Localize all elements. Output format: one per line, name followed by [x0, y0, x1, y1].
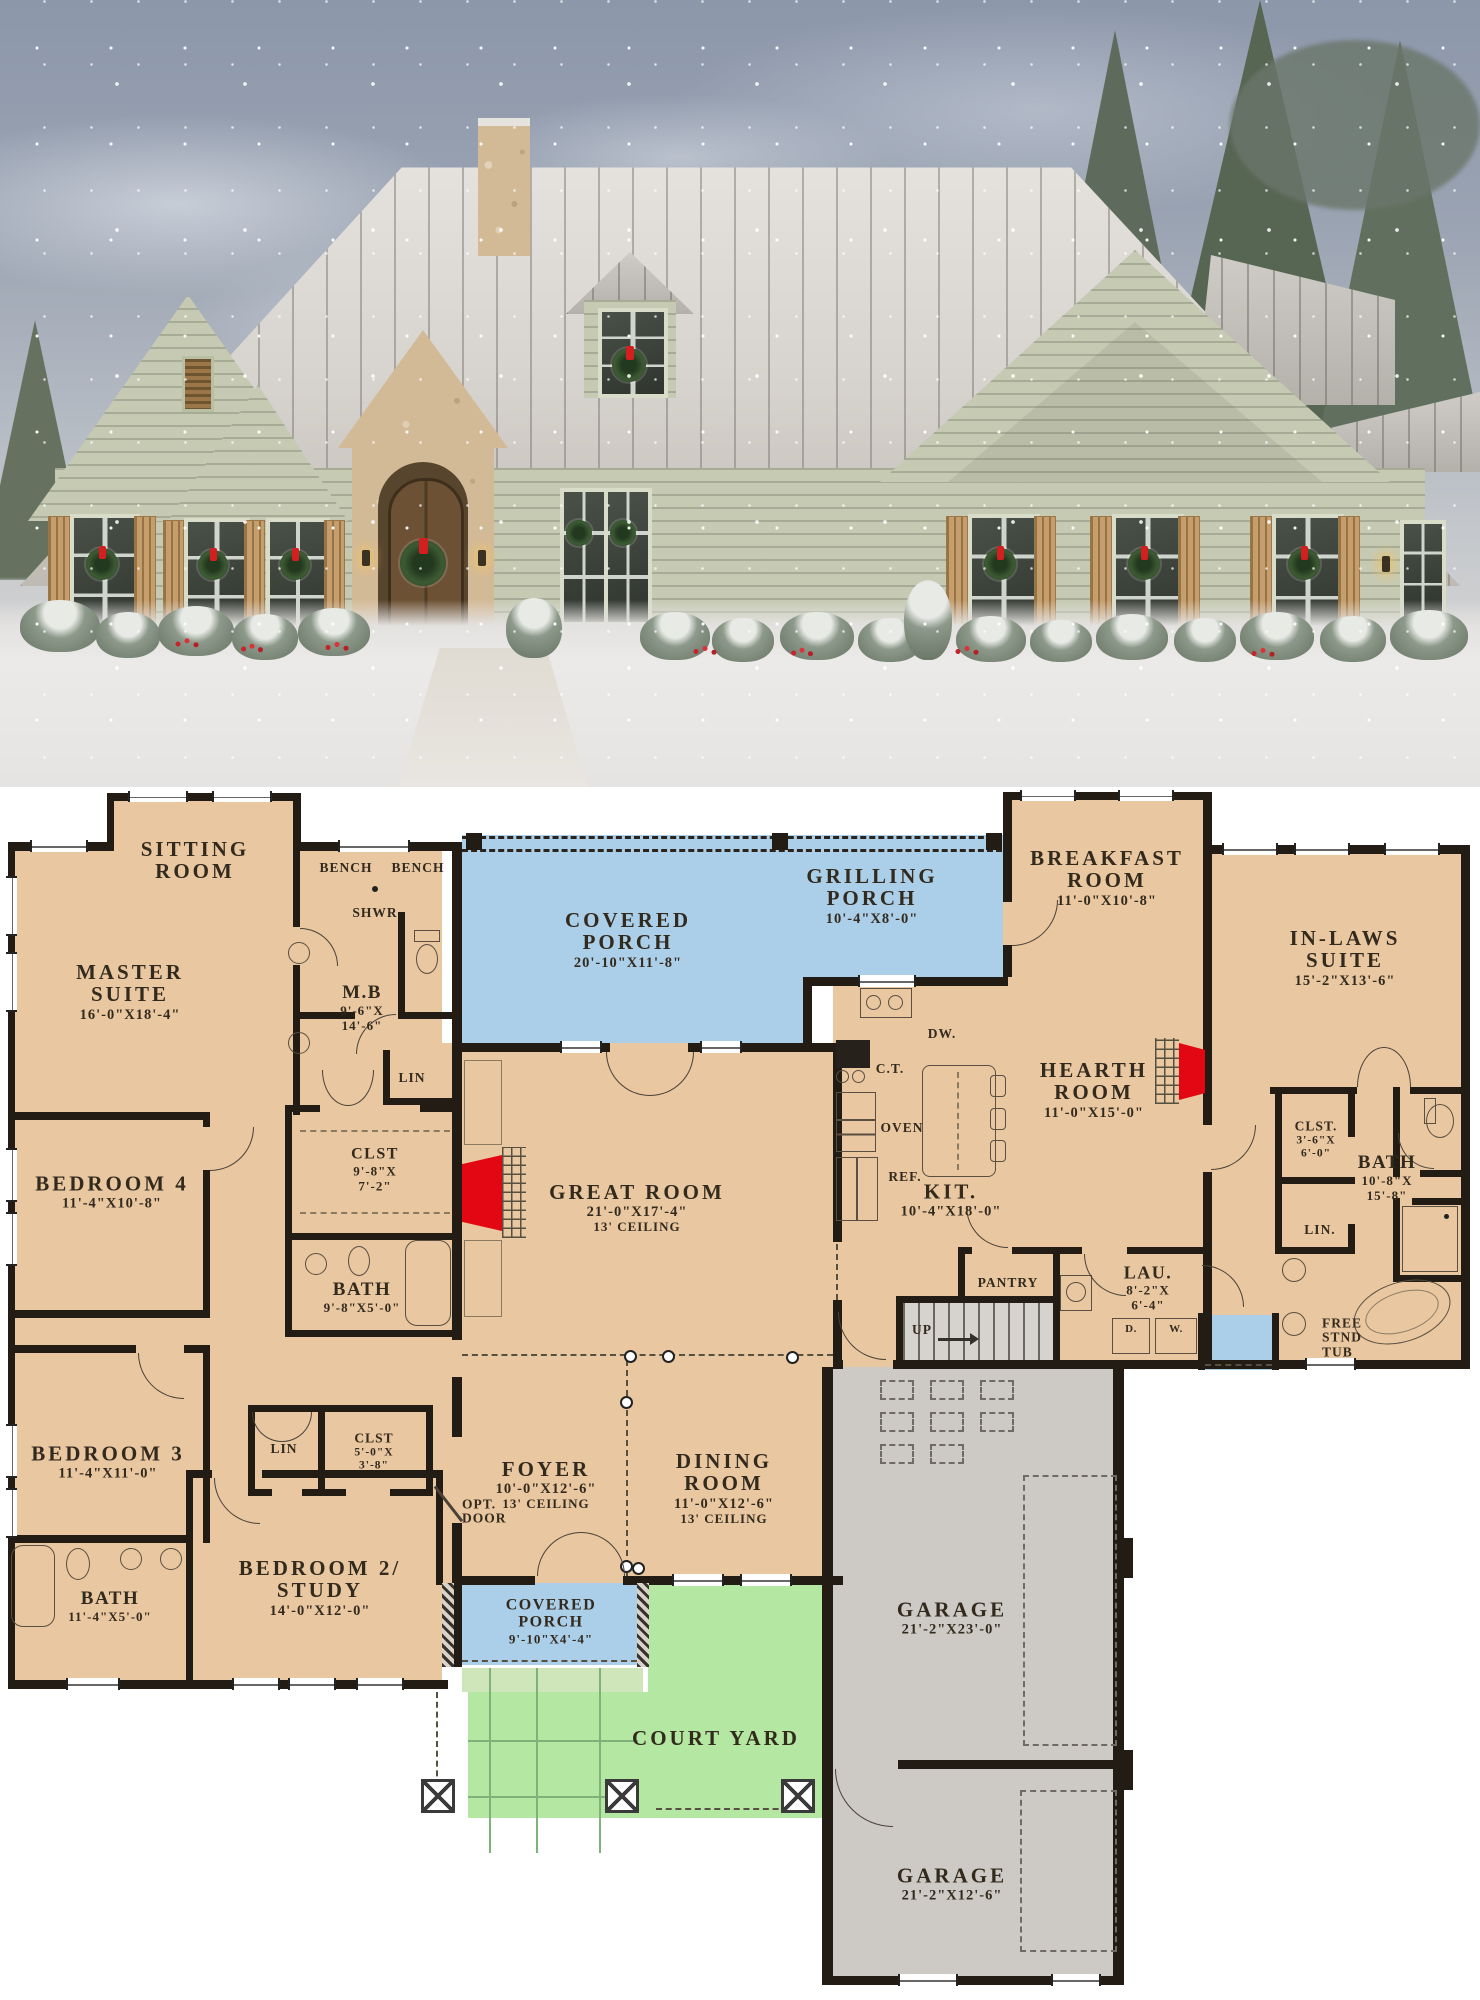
house-exterior-photo — [0, 0, 1480, 787]
porch-edge — [462, 849, 1002, 852]
porch-edge — [1205, 1364, 1272, 1366]
label: REF. — [888, 1170, 921, 1184]
room-name: LIN. — [1304, 1223, 1335, 1237]
wall — [426, 1405, 433, 1496]
wall — [318, 1405, 325, 1496]
room-dims: 21'-2"X12'-6" — [897, 1888, 1007, 1904]
toilet-tank-symbol — [414, 930, 440, 942]
wall — [1410, 1087, 1461, 1094]
storage-dash — [980, 1412, 1014, 1432]
wall — [452, 1377, 462, 1437]
room-label-great: GREAT ROOM21'-0"X17'-4"13' CEILING — [549, 1181, 725, 1235]
wall — [420, 1105, 462, 1112]
room-name: IN-LAWS SUITE — [1278, 927, 1413, 972]
room-label-dining: DINING ROOM11'-0"X12'-6"13' CEILING — [674, 1450, 774, 1526]
wall — [285, 1105, 292, 1240]
label-lin: LIN. — [1304, 1223, 1335, 1237]
porch-edge — [462, 1660, 637, 1662]
wall — [1203, 845, 1212, 1035]
sink-basin — [1066, 1282, 1086, 1302]
wall — [1275, 1177, 1355, 1184]
column-icon — [624, 1350, 637, 1363]
room-dims: 16'-0"X18'-4" — [76, 1007, 184, 1023]
room-dims: 21'-2"X23'-0" — [897, 1622, 1007, 1638]
wall — [285, 1233, 462, 1240]
room-dims: 11'-0"X12'-6" — [674, 1495, 774, 1511]
refrigerator-symbol — [836, 1157, 878, 1221]
wall — [1275, 1247, 1355, 1254]
room-name: BATH — [1358, 1153, 1416, 1173]
wall — [203, 1112, 210, 1127]
closet-rod — [300, 1212, 450, 1214]
room-name: CLST — [354, 1431, 393, 1445]
walk-line — [489, 1668, 491, 1853]
wall — [688, 1043, 700, 1052]
label-dryer: D. — [1125, 1324, 1137, 1336]
room-dims: 5'-0"X 3'-8" — [354, 1447, 393, 1473]
up-arrow — [938, 1338, 972, 1341]
shrub — [712, 618, 774, 662]
shrub — [1030, 620, 1092, 662]
wall — [1003, 945, 1012, 977]
hatched-wall — [637, 1583, 649, 1667]
wall — [285, 1330, 462, 1337]
room-label-clst-inlaws: CLST.3'-6"X 6'-0" — [1295, 1119, 1338, 1160]
wall — [1060, 1247, 1082, 1254]
wall — [1003, 792, 1012, 902]
window-marker — [1305, 1358, 1356, 1370]
column-icon — [786, 1351, 799, 1364]
room-label-bedroom4: BEDROOM 411'-4"X10'-8" — [35, 1172, 189, 1211]
walk-line — [468, 1740, 638, 1742]
wall — [1270, 1087, 1357, 1094]
label-washer: W. — [1169, 1324, 1183, 1336]
room-name: GARAGE — [897, 1864, 1007, 1886]
wall — [803, 977, 812, 1052]
porch-post — [466, 833, 482, 850]
room-name: COVERED PORCH — [565, 909, 691, 954]
room-label-clst-b3: CLST5'-0"X 3'-8" — [354, 1431, 393, 1472]
room-name: CLST — [351, 1146, 399, 1163]
wall — [738, 1043, 840, 1052]
room-dims: 10'-4"X18'-0" — [901, 1204, 1002, 1220]
shower-symbol — [1402, 1206, 1458, 1272]
wall — [1275, 1087, 1282, 1254]
room-name: HEARTH ROOM — [1040, 1059, 1148, 1104]
room-name: DINING ROOM — [674, 1450, 774, 1495]
wall — [833, 1360, 843, 1369]
wall — [8, 1535, 193, 1543]
room-label-master: MASTER SUITE16'-0"X18'-4" — [76, 961, 184, 1023]
wall — [1272, 1313, 1279, 1370]
shrub — [1320, 616, 1386, 662]
storage-dash — [930, 1380, 964, 1400]
shrub — [506, 598, 562, 658]
courtyard-post — [781, 1779, 815, 1813]
porch-edge — [462, 836, 1002, 839]
wall — [248, 1405, 433, 1412]
wall — [452, 1147, 462, 1237]
room-name: GRILLING PORCH — [806, 865, 937, 910]
wall — [452, 1043, 462, 1147]
shrub — [1174, 618, 1236, 662]
room-name: SITTING ROOM — [141, 838, 250, 883]
window-marker — [1020, 790, 1076, 801]
room-dims: 10'-4"X8'-0" — [806, 911, 937, 927]
window-marker — [560, 1041, 602, 1053]
sink-symbol — [1282, 1312, 1306, 1336]
wall — [107, 793, 114, 850]
bathtub-symbol — [11, 1545, 55, 1627]
chimney — [478, 118, 530, 256]
sink-symbol — [305, 1253, 327, 1275]
room-dims: 9'-6"X 14'-6" — [340, 1004, 384, 1033]
oven-symbol — [836, 1092, 876, 1152]
wall — [203, 1170, 210, 1318]
wall — [203, 1345, 210, 1543]
window-marker — [740, 1574, 792, 1586]
room-label-bedroom2: BEDROOM 2/ STUDY14'-0"X12'-0" — [239, 1557, 401, 1619]
window-marker — [6, 1148, 17, 1202]
wall — [390, 1489, 433, 1496]
toilet-symbol — [416, 944, 438, 974]
room-label-clst-master: CLST9'-8"X 7'-2" — [351, 1146, 399, 1193]
room-label-breakfast: BREAKFAST ROOM11'-0"X10'-8" — [1030, 847, 1184, 909]
room-dims: 11'-4"X11'-0" — [31, 1466, 185, 1482]
column-icon — [632, 1562, 645, 1575]
room-name: CLST. — [1295, 1119, 1338, 1133]
window-marker — [338, 840, 410, 852]
label-bench: BENCH — [391, 861, 444, 875]
kitchen-island — [922, 1065, 996, 1177]
room-name: COVERED PORCH — [506, 1597, 597, 1631]
shrub — [20, 600, 100, 652]
wall — [912, 977, 1008, 986]
cooktop-symbol — [836, 1040, 870, 1068]
room-name: BENCH — [319, 861, 372, 875]
column-icon — [620, 1396, 633, 1409]
room-dims: 15'-2"X13'-6" — [1278, 973, 1413, 989]
wall — [1127, 1247, 1208, 1254]
window-marker — [232, 1678, 280, 1690]
room-label-hearth: HEARTH ROOM11'-0"X15'-0" — [1040, 1059, 1148, 1121]
label: D. — [1125, 1324, 1137, 1336]
wall — [1203, 1110, 1212, 1125]
fireplace-icon — [462, 1155, 502, 1231]
label-oven: OVEN — [880, 1121, 923, 1135]
wall — [8, 1345, 136, 1353]
room-name: GARAGE — [897, 1598, 1007, 1620]
window-marker — [128, 791, 188, 802]
label: W. — [1169, 1324, 1183, 1336]
room-name: BEDROOM 2/ STUDY — [239, 1557, 401, 1602]
room-label-sitting: SITTING ROOM — [141, 838, 250, 883]
beam-dashed — [626, 1360, 628, 1576]
closet-rod — [300, 1130, 450, 1132]
window-marker — [6, 1488, 17, 1538]
wall — [302, 1489, 346, 1496]
window-marker — [6, 1424, 17, 1478]
window-marker — [288, 1678, 336, 1690]
wall — [452, 1576, 535, 1585]
room-name: BATH — [68, 1589, 152, 1609]
wall — [1053, 1247, 1060, 1369]
red-flowers — [172, 636, 202, 652]
room-name: COURT YARD — [632, 1727, 800, 1749]
room-label-garage1: GARAGE21'-2"X23'-0" — [897, 1598, 1007, 1637]
room-name: GREAT ROOM — [549, 1181, 725, 1203]
label: UP — [912, 1323, 932, 1337]
storage-dash — [980, 1380, 1014, 1400]
room-label-bedroom3: BEDROOM 311'-4"X11'-0" — [31, 1442, 185, 1481]
sink-basin — [888, 995, 903, 1010]
room-label-foyer: FOYER10'-0"X12'-6"13' CEILING — [496, 1458, 597, 1512]
window-marker — [1294, 843, 1350, 855]
sink-symbol — [120, 1548, 142, 1570]
wall — [893, 1360, 1208, 1369]
storage-dash — [930, 1444, 964, 1464]
wall — [8, 1310, 210, 1318]
bathtub-symbol — [405, 1240, 451, 1326]
room-label-covered-porch-rear: COVERED PORCH20'-10"X11'-8" — [565, 909, 691, 971]
room-name: BENCH — [391, 861, 444, 875]
walk-line — [536, 1668, 538, 1853]
toilet-symbol — [348, 1246, 370, 1276]
walk-line — [599, 1668, 601, 1853]
courtyard-lower — [468, 1692, 822, 1818]
storage-dash — [880, 1380, 914, 1400]
wall — [1412, 1198, 1461, 1205]
room-dims: 9'-8"X5'-0" — [324, 1301, 401, 1316]
shrub — [1390, 610, 1468, 660]
label: C.T. — [876, 1062, 905, 1076]
sink-symbol — [160, 1548, 182, 1570]
shrub — [904, 580, 952, 660]
wall — [822, 1367, 833, 1985]
room-dims: 11'-0"X10'-8" — [1030, 893, 1184, 909]
wall — [896, 1296, 903, 1369]
cabinet — [464, 1240, 502, 1317]
wall — [285, 1233, 292, 1337]
wall — [1113, 1750, 1133, 1790]
column-icon — [662, 1350, 675, 1363]
burner — [852, 1070, 865, 1083]
room-dims: 11'-4"X10'-8" — [35, 1196, 189, 1212]
room-label-bath-hall: BATH9'-8"X5'-0" — [324, 1280, 401, 1316]
room-label-pantry: PANTRY — [978, 1276, 1039, 1290]
wall — [1348, 1224, 1355, 1247]
shower-drain — [372, 886, 378, 892]
room-name: BATH — [324, 1280, 401, 1300]
attic-vent — [182, 356, 214, 412]
wall — [623, 1576, 843, 1585]
porch-post — [772, 833, 788, 850]
label: FREE STND TUB — [1322, 1317, 1362, 1360]
storage-dash — [880, 1412, 914, 1432]
room-name: M.B — [340, 983, 384, 1003]
fireplace-icon — [1179, 1043, 1205, 1100]
room-name: BEDROOM 4 — [35, 1172, 189, 1194]
fence-dashed — [656, 1808, 798, 1810]
room-dims: 9'-8"X 7'-2" — [351, 1164, 399, 1193]
wall — [1461, 845, 1470, 1369]
beam-dashed — [462, 1354, 833, 1356]
burner — [836, 1070, 849, 1083]
red-flowers — [238, 642, 266, 656]
label-lin: LIN — [398, 1071, 425, 1085]
label-dw: DW. — [928, 1027, 956, 1041]
label-courtyard: COURT YARD — [632, 1727, 800, 1749]
wall — [383, 1050, 390, 1105]
window-marker — [1118, 790, 1174, 801]
window-marker — [1222, 843, 1278, 855]
red-flowers — [788, 646, 816, 660]
room-name: LAU. — [1124, 1263, 1173, 1282]
wall — [898, 1760, 1120, 1769]
wall — [262, 1470, 443, 1478]
window-marker — [212, 791, 272, 802]
label-bench: BENCH — [319, 861, 372, 875]
room-note: 13' CEILING — [496, 1498, 597, 1512]
label-up: UP — [912, 1323, 932, 1337]
shower-head — [1444, 1214, 1449, 1219]
room-label-bath-front: BATH11'-4"X5'-0" — [68, 1589, 152, 1625]
label-shwr: SHWR — [352, 906, 397, 920]
room-label-grilling-porch: GRILLING PORCH10'-4"X8'-0" — [806, 865, 937, 927]
room-name: FOYER — [496, 1458, 597, 1480]
room-dims: 21'-0"X17'-4" — [549, 1204, 725, 1220]
label: OVEN — [880, 1121, 923, 1135]
storage-dash — [880, 1444, 914, 1464]
room-name: LIN — [270, 1442, 297, 1456]
window-marker — [672, 1574, 724, 1586]
room-dims: 11'-4"X5'-0" — [68, 1610, 152, 1625]
wall — [1420, 1170, 1461, 1177]
room-name: BEDROOM 3 — [31, 1442, 185, 1464]
wall — [1352, 1360, 1470, 1369]
wall — [1348, 1087, 1355, 1137]
cased-opening — [836, 1244, 838, 1300]
cabinet — [464, 1060, 502, 1145]
label: DW. — [928, 1027, 956, 1041]
wall — [293, 842, 300, 927]
room-label-covered-porch-front: COVERED PORCH9'-10"X4'-4" — [506, 1597, 597, 1646]
up-arrow-head — [970, 1333, 979, 1345]
hatched-wall — [442, 1583, 454, 1667]
room-label-inlaws: IN-LAWS SUITE15'-2"X13'-6" — [1278, 927, 1413, 989]
room-name: SHWR — [352, 906, 397, 920]
courtyard-post — [605, 1779, 639, 1813]
room-dims: 3'-6"X 6'-0" — [1295, 1135, 1338, 1161]
island-line — [957, 1072, 959, 1170]
room-label-laundry: LAU.8'-2"X 6'-4" — [1124, 1263, 1173, 1312]
parking-dash — [1023, 1475, 1117, 1746]
sconce-icon — [1382, 556, 1390, 572]
window-marker — [6, 952, 17, 1012]
shrub — [96, 612, 160, 658]
bow-icon — [419, 538, 428, 554]
label-ct: C.T. — [876, 1062, 905, 1076]
fireplace-hearth — [1155, 1038, 1179, 1104]
chair-symbol — [990, 1075, 1006, 1097]
screenshot: SITTING ROOM MASTER SUITE16'-0"X18'-4" B… — [0, 0, 1480, 2000]
room-label-mb: M.B9'-6"X 14'-6" — [340, 983, 384, 1033]
room-dims: 14'-0"X12'-0" — [239, 1603, 401, 1619]
room-dims: 8'-2"X 6'-4" — [1124, 1283, 1173, 1312]
wall — [285, 1105, 320, 1112]
window-marker — [6, 876, 17, 936]
wall — [833, 1300, 842, 1369]
wall — [958, 1247, 965, 1303]
shrub — [1096, 614, 1168, 660]
label-ref: REF. — [888, 1170, 921, 1184]
window-marker — [6, 1212, 17, 1266]
room-dims: 11'-0"X15'-0" — [1040, 1105, 1148, 1121]
porch-post — [986, 833, 1002, 850]
chair-symbol — [990, 1140, 1006, 1162]
window-marker — [66, 1678, 120, 1690]
window-marker — [898, 1974, 958, 1986]
room-dims: 9'-10"X4'-4" — [506, 1632, 597, 1647]
red-flowers — [952, 644, 982, 659]
room-name: LIN — [398, 1071, 425, 1085]
courtyard-upper — [648, 1578, 822, 1692]
room-note: 13' CEILING — [549, 1221, 725, 1235]
chair-symbol — [990, 1108, 1006, 1130]
wall — [1012, 1247, 1060, 1254]
wall — [452, 1043, 560, 1052]
wall — [383, 1098, 462, 1105]
wall — [398, 1012, 462, 1019]
wall — [452, 1237, 462, 1340]
room-name: PANTRY — [978, 1276, 1039, 1290]
sink-symbol — [1282, 1258, 1306, 1282]
red-flowers — [322, 640, 352, 655]
label-lin: LIN — [270, 1442, 297, 1456]
room-note: 13' CEILING — [674, 1512, 774, 1526]
window-marker — [1051, 1974, 1101, 1986]
window-marker — [858, 975, 916, 987]
red-flowers — [1248, 646, 1278, 661]
window-marker — [700, 1041, 742, 1053]
wall — [398, 912, 405, 1012]
wall — [186, 1477, 193, 1689]
tree-canopy — [1230, 40, 1480, 210]
bow-icon — [626, 346, 634, 360]
window-marker — [356, 1678, 404, 1690]
wall — [1203, 792, 1212, 845]
window-marker — [1384, 843, 1440, 855]
room-name: BREAKFAST ROOM — [1030, 847, 1184, 892]
room-label-garage2: GARAGE21'-2"X12'-6" — [897, 1864, 1007, 1903]
wall — [1393, 1198, 1400, 1282]
window-marker — [30, 840, 88, 852]
label-free-stnd-tub: FREE STND TUB — [1322, 1317, 1362, 1360]
room-dims: 10'-8"X 15'-8" — [1358, 1174, 1416, 1203]
red-flowers — [690, 644, 720, 659]
room-dims: 10'-0"X12'-6" — [496, 1481, 597, 1497]
wall — [903, 1296, 1053, 1303]
room-label-kitchen: KIT.10'-4"X18'-0" — [901, 1180, 1002, 1219]
sconce-icon — [362, 550, 370, 566]
room-label-bath-inlaws: BATH10'-8"X 15'-8" — [1358, 1153, 1416, 1203]
fireplace-hearth — [502, 1147, 526, 1238]
storage-dash — [930, 1412, 964, 1432]
courtyard-post — [421, 1779, 455, 1813]
parking-dash — [1020, 1790, 1117, 1952]
wall — [1198, 1313, 1205, 1370]
sink-basin — [866, 995, 881, 1010]
